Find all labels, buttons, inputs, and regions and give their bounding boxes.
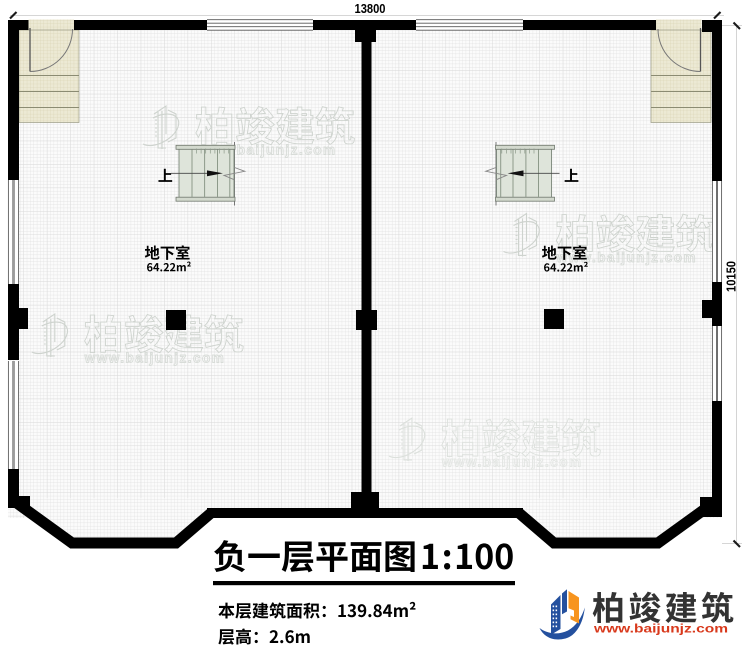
svg-text:www.baijunjz.com: www.baijunjz.com — [593, 624, 728, 636]
svg-text:www.baijunjz.com: www.baijunjz.com — [84, 351, 226, 366]
svg-text:10150: 10150 — [725, 261, 739, 292]
svg-text:13800: 13800 — [355, 2, 386, 16]
svg-text:www.baijunjz.com: www.baijunjz.com — [441, 455, 583, 470]
